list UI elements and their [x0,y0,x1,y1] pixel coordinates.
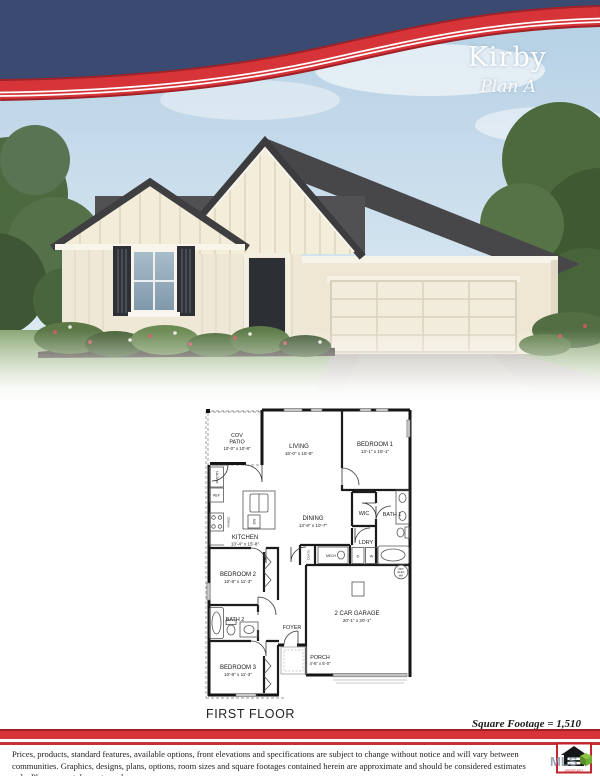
room-label-bath2: BATH 2 [226,617,244,623]
room-label-cov: COV [231,433,243,439]
room-label-patio: PATIO [229,440,244,446]
flyer-page: Kirby Plan A [0,0,600,776]
room-dims-bedroom2: 10'-8" x 11'-3" [224,579,252,584]
room-label-bedroom1: BEDROOM 1 [357,442,394,448]
room-dims-living: 15'-0" x 15'-9" [285,451,314,456]
slab-dashed-outline [206,411,284,698]
room-label-kitchen: KITCHEN [232,535,258,541]
room-label-living: LIVING [289,444,309,450]
room-label-foyer: FOYER [283,625,302,631]
mls-text: MLS [550,754,578,769]
room-dims-bedroom3: 10'-8" x 11'-3" [224,672,252,677]
front-window [113,246,195,317]
footer-red-line [0,742,600,745]
bath2-fixtures [210,608,259,639]
room-label-ldry: LDRY [359,540,374,546]
plan-corner-dot [206,409,210,413]
room-label-wic: WIC [359,511,370,517]
room-label-bedroom2: BEDROOM 2 [220,572,257,578]
footer-logo: MLS OPPORTUNITY [549,742,594,775]
room-label-garage: 2 CAR GARAGE [334,611,379,617]
disclaimer-text: Prices, products, standard features, ava… [12,749,544,776]
room-dims-bedroom1: 13'-1" x 15'-1" [361,449,390,454]
photo-fade [0,330,600,405]
room-dims-patio: 10'-0" x 10'-8" [223,446,250,451]
room-dims-kitchen: 13'-4" x 15'-8" [231,542,260,547]
room-dims-porch: 4'-6" x 5'-0" [309,661,331,666]
plan-name: Kirby [468,42,547,73]
floor-plan: COV PATIO 10'-0" x 10'-8" LIVING 15'-0" … [180,400,430,730]
room-label-bath1: BATH 1 [383,512,401,518]
fixture-label-range: RANGE [227,517,231,528]
room-dims-dining: 13'-8" x 10'-7" [299,523,328,528]
first-floor-caption: FIRST FLOOR [206,707,295,721]
bath1-fixtures [378,490,410,564]
plan-variant: Plan A [480,77,536,97]
fixture-label-mech: MECH [326,554,337,558]
equal-housing-caption: OPPORTUNITY [565,769,584,773]
porch-slab [281,647,306,674]
fixture-label-dryer: D [357,555,360,559]
garage-fascia [300,256,558,263]
fixture-label-ref: REF [213,494,220,498]
footer-red-bar [0,729,600,739]
fixture-label-washer: W [370,555,374,559]
fixture-label-pantry: PANTRY [216,470,220,484]
room-label-dining: DINING [303,516,324,522]
label-wh: WH [399,573,404,577]
room-dims-garage: 20'-1" x 20'-1" [343,618,372,623]
fixture-label-dw: DW [253,518,257,524]
fixture-label-coats: COATS [307,550,311,560]
room-label-bedroom3: BEDROOM 3 [220,665,257,671]
